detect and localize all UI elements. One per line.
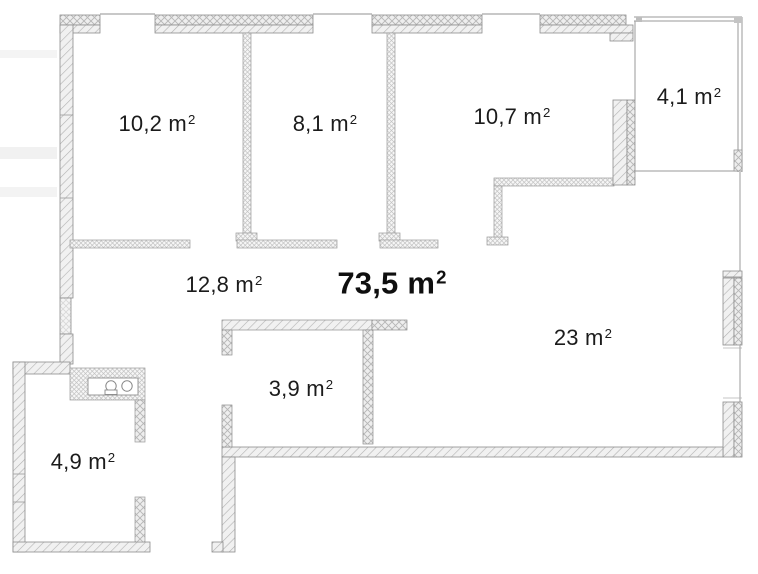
- room-region-bedroom-2: [251, 33, 387, 240]
- area-sup: 2: [605, 326, 613, 341]
- area-unit: m: [324, 111, 349, 136]
- room-label-storage: 3,9 m2: [269, 378, 334, 400]
- area-value: 12,8: [185, 272, 229, 297]
- area-value: 10,7: [473, 104, 517, 129]
- area-value: 4,9: [51, 449, 82, 474]
- area-sup: 2: [108, 450, 116, 465]
- wall-outer-left: [60, 25, 73, 364]
- scan-artifacts: [0, 50, 57, 197]
- wall-living-bottom: [222, 447, 723, 457]
- floorplan-page: 10,2 m2 8,1 m2 10,7 m2 4,1 m2 12,8 m2 73…: [0, 0, 758, 574]
- room-label-balcony: 4,1 m2: [657, 86, 722, 108]
- area-sup: 2: [543, 105, 551, 120]
- area-value: 23: [554, 325, 579, 350]
- room-label-bathroom: 4,9 m2: [51, 451, 116, 473]
- total-area-label: 73,5 m2: [337, 268, 446, 299]
- room-label-bedroom-2: 8,1 m2: [293, 113, 358, 135]
- area-sup: 2: [255, 273, 263, 288]
- area-value: 10,2: [118, 111, 162, 136]
- wall-entrance-left: [212, 457, 235, 552]
- area-unit: m: [162, 111, 187, 136]
- area-value: 8,1: [293, 111, 324, 136]
- area-unit: m: [399, 266, 436, 301]
- room-label-bedroom-1: 10,2 m2: [118, 113, 195, 135]
- area-sup: 2: [326, 377, 334, 392]
- area-sup: 2: [436, 266, 447, 287]
- wall-hallway-top: [70, 240, 438, 248]
- area-unit: m: [300, 376, 325, 401]
- room-label-hallway: 12,8 m2: [185, 274, 262, 296]
- area-sup: 2: [188, 112, 196, 127]
- wall-outer-right: [723, 172, 742, 457]
- area-value: 73,5: [337, 266, 398, 301]
- area-unit: m: [688, 84, 713, 109]
- area-sup: 2: [350, 112, 358, 127]
- room-label-living-room: 23 m2: [554, 327, 612, 349]
- area-unit: m: [82, 449, 107, 474]
- area-unit: m: [579, 325, 604, 350]
- area-value: 3,9: [269, 376, 300, 401]
- area-unit: m: [517, 104, 542, 129]
- room-region-bedroom-1: [73, 33, 243, 240]
- area-unit: m: [229, 272, 254, 297]
- room-label-bedroom-3: 10,7 m2: [473, 106, 550, 128]
- area-sup: 2: [714, 85, 722, 100]
- area-value: 4,1: [657, 84, 688, 109]
- room-region-living: [400, 186, 723, 447]
- wall-balcony-separator: [613, 100, 635, 185]
